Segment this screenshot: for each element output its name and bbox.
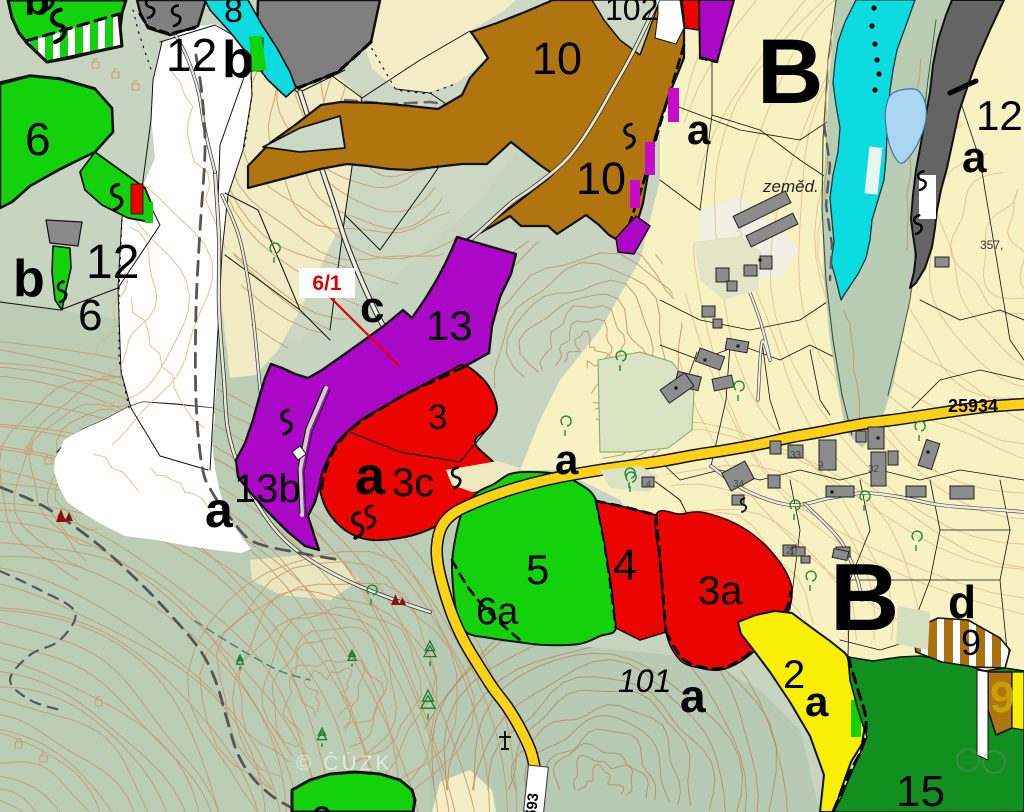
svg-text:4: 4 [613,541,637,590]
svg-text:101: 101 [618,663,671,699]
svg-text:zeměd.: zeměd. [762,177,819,196]
svg-text:13b: 13b [234,467,301,511]
svg-text:b: b [222,31,254,89]
svg-text:a: a [805,678,829,725]
svg-text:15: 15 [896,767,945,812]
svg-text:3c: 3c [392,461,434,505]
svg-text:3a: 3a [698,569,743,613]
svg-text:B: B [757,21,823,123]
svg-text:5: 5 [526,546,549,593]
svg-text:12: 12 [166,29,217,81]
svg-text:d: d [948,576,976,628]
svg-text:c: c [360,283,384,332]
svg-text:8: 8 [224,0,243,30]
svg-text:a: a [962,133,987,182]
svg-text:a: a [680,670,706,722]
svg-text:12: 12 [86,236,139,289]
svg-text:357,: 357, [980,238,1003,252]
svg-text:4: 4 [646,479,651,489]
svg-text:© ČÚZK: © ČÚZK [296,752,392,775]
svg-text:6: 6 [25,113,51,165]
svg-text:a: a [555,436,579,483]
svg-text:10: 10 [532,33,582,84]
svg-text:6: 6 [78,291,102,340]
svg-text:32: 32 [868,464,880,475]
svg-text:20: 20 [786,546,798,557]
svg-text:9: 9 [818,460,824,471]
svg-text:6/1: 6/1 [312,272,342,295]
svg-text:a: a [205,482,234,538]
svg-text:a: a [687,106,711,153]
svg-text:25934: 25934 [948,396,998,416]
svg-text:9: 9 [961,622,981,663]
svg-text:33: 33 [790,450,802,461]
svg-text:6a: 6a [476,591,519,633]
svg-text:2: 2 [783,653,805,697]
svg-text:b: b [13,250,45,308]
svg-text:593: 593 [523,792,543,812]
svg-text:13: 13 [426,302,473,349]
svg-text:B: B [830,544,899,651]
svg-text:3: 3 [428,398,447,437]
svg-text:b: b [24,0,50,24]
svg-text:9: 9 [990,673,1014,722]
svg-text:6: 6 [310,799,332,812]
svg-text:102: 102 [605,0,658,27]
svg-text:a: a [355,446,386,506]
svg-text:10: 10 [576,153,626,204]
svg-text:34: 34 [733,479,745,490]
svg-text:12: 12 [976,92,1023,139]
